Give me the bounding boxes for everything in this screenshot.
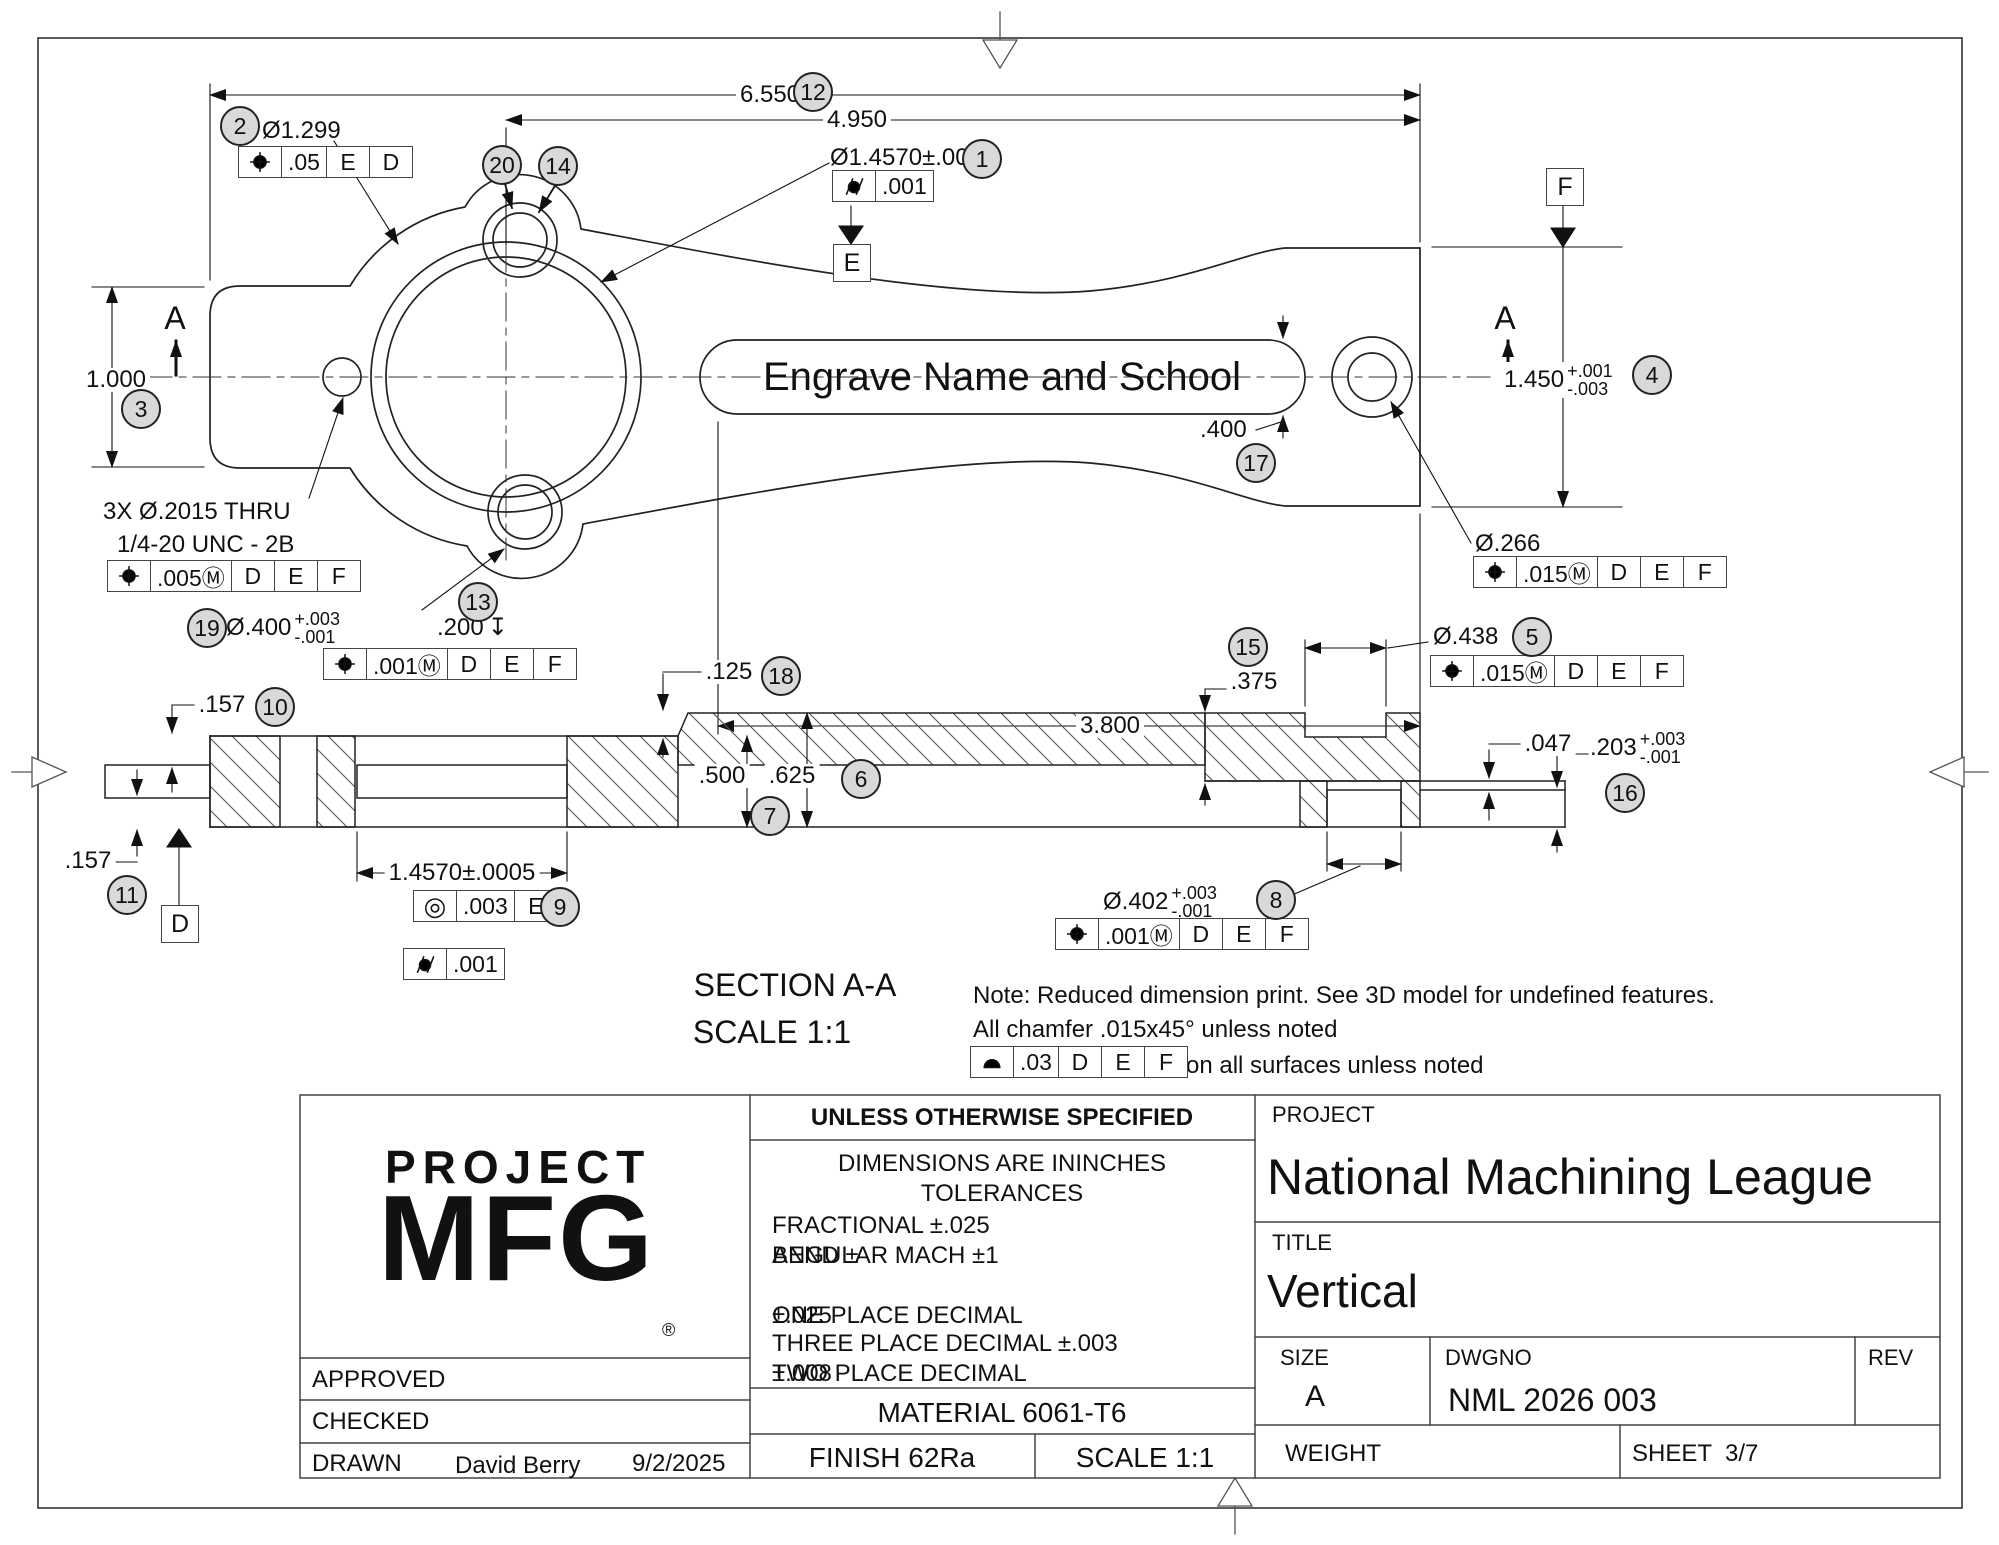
position-icon <box>1474 557 1517 587</box>
dia-266: Ø.266 <box>1475 532 1540 556</box>
title-label: TITLE <box>1272 1230 1332 1256</box>
section-scale: SCALE 1:1 <box>693 1016 851 1048</box>
balloon-14: 14 <box>538 146 578 186</box>
balloon-15: 15 <box>1228 627 1268 667</box>
balloon-10: 10 <box>255 687 295 727</box>
dim-125: .125 <box>702 660 757 684</box>
size-label: SIZE <box>1280 1345 1329 1371</box>
dim-375: .375 <box>1227 670 1282 694</box>
section-view <box>105 713 1565 827</box>
section-title: SECTION A-A <box>694 969 897 1001</box>
fcf-position-438: .015Ⓜ D E F <box>1430 655 1684 687</box>
thread-note-line2: 1/4-20 UNC - 2B <box>117 533 294 557</box>
sheet-label: SHEET <box>1632 1440 1712 1468</box>
dims-inches-line: DIMENSIONS ARE ININCHES <box>838 1150 1166 1178</box>
balloon-17: 17 <box>1236 443 1276 483</box>
position-icon <box>1431 656 1474 686</box>
drawn-label: DRAWN <box>312 1450 402 1478</box>
dia-438: Ø.438 <box>1433 625 1498 649</box>
drawing-sheet: 6.550 12 4.950 2 Ø1.299 .05 E D 20 14 Ø1… <box>0 0 1999 1545</box>
sheet-value: 3/7 <box>1725 1440 1758 1468</box>
fcf-profile-note: .03 D E F <box>970 1046 1188 1078</box>
position-icon <box>108 561 151 591</box>
weight-label: WEIGHT <box>1285 1440 1381 1468</box>
depth-icon: ↧ <box>488 616 508 640</box>
checked-label: CHECKED <box>312 1408 429 1436</box>
section-letter-right: A <box>1494 302 1515 334</box>
project-name: National Machining League <box>1267 1148 1873 1206</box>
balloon-20: 20 <box>482 145 522 185</box>
cylindricity-icon <box>404 949 447 979</box>
datum-e-flag: E <box>833 244 871 282</box>
position-icon <box>239 147 282 177</box>
finish-cell: FINISH 62Ra <box>809 1442 976 1474</box>
profile-icon <box>971 1047 1014 1077</box>
note-line2: All chamfer .015x45° unless noted <box>973 1018 1337 1042</box>
tol-one-place: ONE PLACE DECIMAL ±.025 <box>772 1302 1252 1332</box>
thread-note-line1: 3X Ø.2015 THRU <box>103 500 291 524</box>
balloon-12: 12 <box>793 72 833 112</box>
dim-1450: 1.450 +.001-.003 <box>1500 362 1617 398</box>
tol-three-place: THREE PLACE DECIMAL ±.003 <box>772 1330 1118 1358</box>
balloon-13: 13 <box>458 582 498 622</box>
dim-625: .625 <box>765 764 820 788</box>
datum-d-flag: D <box>161 905 199 943</box>
fcf-position-266: .015Ⓜ D E F <box>1473 556 1727 588</box>
balloon-3: 3 <box>121 389 161 429</box>
balloon-19: 19 <box>187 608 227 648</box>
fcf-position-1299: .05 E D <box>238 146 413 178</box>
balloon-11: 11 <box>107 875 147 915</box>
dwgno-value: NML 2026 003 <box>1448 1382 1657 1419</box>
drawn-date: 9/2/2025 <box>632 1450 725 1478</box>
project-label: PROJECT <box>1272 1102 1375 1128</box>
scale-cell: SCALE 1:1 <box>1076 1442 1215 1474</box>
engrave-slot-text: Engrave Name and School <box>763 357 1241 397</box>
dim-157-top: .157 <box>195 693 250 717</box>
note-line3-suffix: on all surfaces unless noted <box>1186 1054 1484 1078</box>
cylindricity-icon <box>833 171 876 201</box>
dwgno-label: DWGNO <box>1445 1345 1532 1371</box>
fcf-position-2015: .005Ⓜ D E F <box>107 560 361 592</box>
uos-header: UNLESS OTHERWISE SPECIFIED <box>811 1104 1193 1132</box>
material-cell: MATERIAL 6061-T6 <box>878 1397 1127 1429</box>
dia-1299: Ø1.299 <box>262 119 341 143</box>
logo-registered: ® <box>662 1320 675 1341</box>
concentricity-icon: ◎ <box>414 891 457 921</box>
datum-f-flag: F <box>1546 168 1584 206</box>
dim-203-callout: .203 +.003-.001 <box>1590 730 1685 766</box>
position-icon <box>324 649 367 679</box>
balloon-1: 1 <box>962 139 1002 179</box>
dim-3800: 3.800 <box>1076 714 1144 738</box>
dim-157-bottom: .157 <box>61 849 116 873</box>
balloon-6: 6 <box>841 759 881 799</box>
tolerances-header: TOLERANCES <box>921 1180 1083 1208</box>
fcf-position-400: .001Ⓜ D E F <box>323 648 577 680</box>
fcf-cylindricity-section: .001 <box>403 948 505 980</box>
balloon-9: 9 <box>540 887 580 927</box>
drawn-by: David Berry <box>455 1452 580 1480</box>
fcf-concentricity: ◎ .003 E <box>413 890 558 922</box>
tol-fractional: FRACTIONAL ±.025 <box>772 1212 990 1240</box>
approved-label: APPROVED <box>312 1366 445 1394</box>
dim-400-slot: .400 <box>1200 418 1247 442</box>
tol-angular: ANGULAR MACH ±1 BEND ± <box>772 1242 1252 1272</box>
dim-4950: 4.950 <box>823 108 891 132</box>
logo-mfg: MFG <box>378 1190 655 1288</box>
balloon-2: 2 <box>220 106 260 146</box>
rev-label: REV <box>1868 1345 1913 1371</box>
fcf-position-402: .001Ⓜ D E F <box>1055 918 1309 950</box>
balloon-8: 8 <box>1256 880 1296 920</box>
section-letter-left: A <box>164 302 185 334</box>
size-value: A <box>1305 1380 1325 1414</box>
balloon-16: 16 <box>1605 773 1645 813</box>
dim-047: .047 <box>1521 732 1576 756</box>
fcf-cylindricity-1457: .001 <box>832 170 934 202</box>
note-line1: Note: Reduced dimension print. See 3D mo… <box>973 984 1715 1008</box>
balloon-18: 18 <box>761 656 801 696</box>
balloon-4: 4 <box>1632 355 1672 395</box>
position-icon <box>1056 919 1099 949</box>
dia-402-callout: Ø.402 +.003-.001 <box>1103 884 1217 920</box>
balloon-5: 5 <box>1512 617 1552 657</box>
title-value: Vertical <box>1267 1264 1418 1318</box>
dim-1457-section: 1.4570±.0005 <box>385 861 540 885</box>
dim-500: .500 <box>695 764 750 788</box>
tol-two-place: TWO PLACE DECIMAL ±.008 <box>772 1360 1252 1390</box>
balloon-7: 7 <box>750 796 790 836</box>
